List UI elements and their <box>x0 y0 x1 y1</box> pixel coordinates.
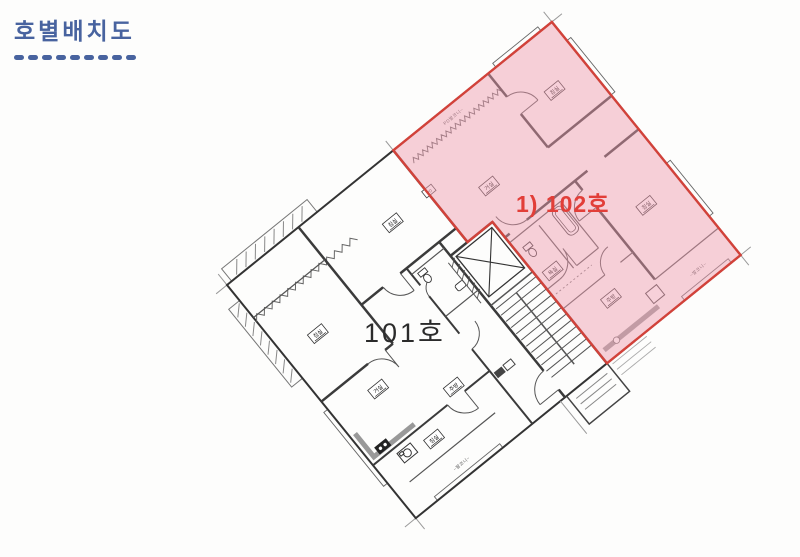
room-label-bedroom-101-b: 침실 <box>382 213 403 233</box>
balcony-note-101: ~발코니~ <box>452 455 472 473</box>
room-label-bedroom-101-c: 침실 <box>424 429 445 449</box>
floor-plan-svg: 침실 침실 거실 주방 <box>0 0 800 557</box>
room-label-bedroom-101-a: 침실 <box>307 324 328 344</box>
unit-102-label: 1) 102호 <box>516 185 609 219</box>
unit-101-label: 101호 <box>364 311 446 350</box>
floor-plan: 침실 침실 거실 주방 <box>0 0 800 557</box>
document-page: 호별배치도 <box>0 0 800 557</box>
zigzag-101 <box>253 235 358 321</box>
rotated-plan: 침실 침실 거실 주방 <box>206 1 777 557</box>
bathroom-101-fixtures <box>418 254 467 304</box>
room-label-kitchen-101: 주방 <box>443 377 464 397</box>
room-label-living-101: 거실 <box>368 379 389 399</box>
washer-icon <box>397 443 418 463</box>
shoe-cabinet-icons <box>494 359 516 378</box>
balcony-hatch-top <box>222 200 318 282</box>
balcony-hatch-left <box>229 301 303 388</box>
